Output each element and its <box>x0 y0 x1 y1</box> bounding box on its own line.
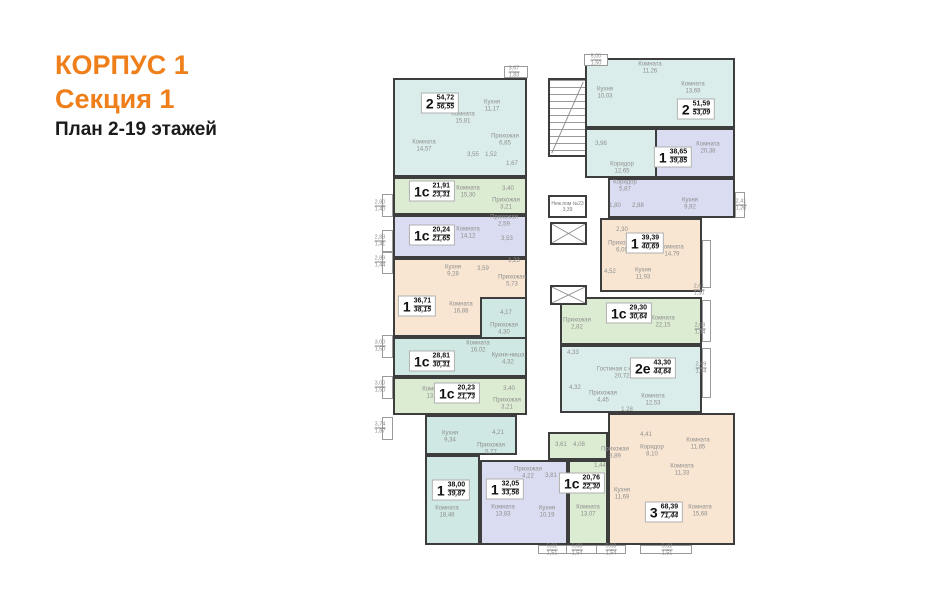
dimension-label: 3,741,87 <box>375 422 386 435</box>
tech-room: Неж.пом №23 3,39 <box>548 195 587 218</box>
room-label: Прихожая6,85 <box>491 134 519 147</box>
apt-area-main: 32,05 <box>502 481 520 490</box>
room-label: 3,81 <box>545 473 557 480</box>
apt-area-total: 30,64 <box>630 314 648 322</box>
apartment-label: 1с21,9123,31 <box>409 181 455 202</box>
apartment-label: 138,0039,87 <box>432 480 470 501</box>
apartment-label: 138,6539,85 <box>654 147 692 168</box>
dimension-label: 2,891,44 <box>375 256 386 269</box>
apt-area-main: 29,30 <box>630 305 648 314</box>
apt-area-main: 20,24 <box>433 227 451 236</box>
room-label: 1,28 <box>621 407 633 414</box>
room-label: 3,61 <box>555 442 567 449</box>
room-label: Прихожая4,30 <box>490 323 518 336</box>
apt-area-total: 40,69 <box>642 244 660 252</box>
room-label: 4,08 <box>573 442 585 449</box>
elevator-cross-icon <box>552 224 585 243</box>
apartment-label: 139,3940,69 <box>626 233 664 254</box>
apt-type: 2е <box>635 360 651 376</box>
apartment-label: 1с20,2321,73 <box>434 383 480 404</box>
room-label: Прихожая3,89 <box>601 447 629 460</box>
apt-type: 3 <box>650 504 658 520</box>
room-label: Коридор12,65 <box>610 162 634 175</box>
tech-room-area: 3,39 <box>563 207 573 213</box>
apt-type: 2 <box>682 101 690 117</box>
room-label: Комната11,26 <box>638 62 662 75</box>
dimension-label: 2,611,30 <box>694 284 705 297</box>
room-label: 1,23 <box>508 258 520 265</box>
room-label: 4,41 <box>640 432 652 439</box>
apartment-label: 368,3971,44 <box>645 502 683 523</box>
room-label: 3,55 <box>467 152 479 159</box>
apt-area-total: 56,55 <box>437 104 455 112</box>
apt-area-total: 33,56 <box>502 490 520 498</box>
dimension-label: 5,001,50 <box>591 54 602 67</box>
room-label: Прихожая4,45 <box>589 391 617 404</box>
room-label: Коридор8,10 <box>640 445 664 458</box>
dimension-label: 2,691,34 <box>695 323 706 336</box>
apt-area-total: 39,85 <box>670 158 688 166</box>
dimension-label: 5,081,54 <box>572 544 583 557</box>
apartment-label: 1с20,7622,30 <box>559 473 605 494</box>
apt-area-main: 38,00 <box>448 482 466 491</box>
apartment-3k-68[interactable] <box>608 413 735 545</box>
apt-area-main: 20,76 <box>583 475 601 484</box>
room-label: Коридор5,87 <box>613 180 637 193</box>
apt-type: 1с <box>611 305 627 321</box>
apt-type: 1 <box>403 298 411 314</box>
balcony <box>702 300 711 342</box>
dimension-label: 3,001,50 <box>375 340 386 353</box>
stairs-run-line <box>550 80 585 155</box>
apt-area-main: 28,81 <box>433 353 451 362</box>
dimension-label: 3,671,83 <box>509 66 520 79</box>
apt-area-total: 23,31 <box>433 192 451 200</box>
apt-area-total: 21,73 <box>458 394 476 402</box>
apartment-label: 1с29,3030,64 <box>606 303 652 324</box>
dimension-label: 2,831,41 <box>375 235 386 248</box>
room-label: 2,88 <box>632 203 644 210</box>
room-label: Комната11,85 <box>686 438 710 451</box>
room-label: 3,40 <box>502 186 514 193</box>
apt-type: 1 <box>437 482 445 498</box>
room-label: Кухня10,19 <box>539 506 555 519</box>
apt-area-total: 38,15 <box>414 307 432 315</box>
room-label: Комната20,38 <box>696 142 720 155</box>
apt-area-main: 21,91 <box>433 183 451 192</box>
apt-type: 1с <box>414 353 430 369</box>
apartment-label: 254,7256,55 <box>421 93 459 114</box>
room-label: Прихожая2,82 <box>563 318 591 331</box>
apt-type: 1с <box>414 227 430 243</box>
apt-area-total: 39,87 <box>448 491 466 499</box>
room-label: Прихожая5,73 <box>498 275 526 288</box>
room-label: 4,33 <box>567 350 579 357</box>
room-label: Кухня-ниша4,32 <box>492 353 525 366</box>
apt-type: 2 <box>426 95 434 111</box>
apt-area-total: 53,09 <box>693 110 711 118</box>
dimension-label: 5,081,54 <box>606 544 617 557</box>
room-label: Комната13,07 <box>576 505 600 518</box>
room-label: Кухня11,93 <box>635 268 651 281</box>
room-label: 3,53 <box>501 236 513 243</box>
apt-area-total: 21,65 <box>433 236 451 244</box>
apartment-label: 136,7138,15 <box>398 296 436 317</box>
room-label: 3,59 <box>477 266 489 273</box>
dimension-label: 5,021,51 <box>547 544 558 557</box>
dimension-label: 2,801,40 <box>375 200 386 213</box>
apt-area-main: 39,39 <box>642 235 660 244</box>
apt-type: 1 <box>659 149 667 165</box>
floor-plan: Неж.пом №23 3,39 254,7256,55 1с21,9123,3… <box>0 0 941 600</box>
apartment-label: 2е43,3044,64 <box>630 358 676 379</box>
room-label: Прихожая3,21 <box>493 398 521 411</box>
room-label: 1,52 <box>485 152 497 159</box>
staircase <box>548 78 587 157</box>
room-label: Прихожая5,77 <box>477 443 505 456</box>
room-label: Комната15,30 <box>456 186 480 199</box>
room-label: 3,40 <box>503 386 515 393</box>
apt-area-total: 44,64 <box>654 369 672 377</box>
elevator-shaft-1 <box>550 222 587 245</box>
room-label: 3,96 <box>595 141 607 148</box>
room-label: Комната22,15 <box>651 316 675 329</box>
room-label: 1,44 <box>594 463 606 470</box>
apt-area-main: 38,65 <box>670 149 688 158</box>
room-label: Кухня10,03 <box>597 87 613 100</box>
room-label: Кухня9,34 <box>442 431 458 444</box>
apt-area-total: 22,30 <box>583 484 601 492</box>
apartment-label: 132,0533,56 <box>486 479 524 500</box>
dimension-label: 2,691,34 <box>696 362 707 375</box>
apt-area-main: 68,39 <box>661 504 679 513</box>
apt-area-main: 20,23 <box>458 385 476 394</box>
apt-area-main: 36,71 <box>414 298 432 307</box>
apt-area-main: 54,72 <box>437 95 455 104</box>
room-label: Прихожая3,21 <box>492 198 520 211</box>
room-label: Комната16,88 <box>449 302 473 315</box>
elevator-shaft-2 <box>550 285 587 305</box>
room-label: Кухня9,92 <box>682 198 698 211</box>
apt-area-total: 30,31 <box>433 362 451 370</box>
room-label: Комната11,33 <box>670 464 694 477</box>
dimension-label: 5,021,51 <box>662 544 673 557</box>
elevator-cross-icon <box>552 287 585 303</box>
apt-area-main: 51,59 <box>693 101 711 110</box>
apartment-label: 1с20,2421,65 <box>409 225 455 246</box>
apartment-label: 1с28,8130,31 <box>409 351 455 372</box>
room-label: Комната16,02 <box>466 341 490 354</box>
dimension-label: 2,411,20 <box>736 199 747 212</box>
apt-type: 1с <box>414 183 430 199</box>
room-label: 4,52 <box>604 269 616 276</box>
room-label: Комната13,83 <box>491 505 515 518</box>
apt-type: 1 <box>491 481 499 497</box>
room-label: Комната18,48 <box>435 506 459 519</box>
room-label: Комната13,69 <box>681 82 705 95</box>
room-label: Комната14,57 <box>412 140 436 153</box>
room-label: Комната14,12 <box>456 227 480 240</box>
apt-type: 1с <box>439 385 455 401</box>
room-label: Кухня11,17 <box>484 100 500 113</box>
room-label: 1,80 <box>609 203 621 210</box>
apt-area-total: 71,44 <box>661 513 679 521</box>
room-label: 1,67 <box>506 161 518 168</box>
room-label: Комната15,68 <box>688 505 712 518</box>
room-label: 4,21 <box>492 430 504 437</box>
dimension-label: 3,001,50 <box>375 381 386 394</box>
apt-area-main: 43,30 <box>654 360 672 369</box>
room-label: Кухня9,28 <box>445 265 461 278</box>
room-label: 4,17 <box>500 310 512 317</box>
room-label: 4,32 <box>569 385 581 392</box>
apt-type: 1 <box>631 235 639 251</box>
room-label: Комната12,53 <box>641 394 665 407</box>
apartment-label: 251,5953,09 <box>677 99 715 120</box>
room-label: Прихожая2,59 <box>490 215 518 228</box>
apt-type: 1с <box>564 475 580 491</box>
balcony <box>702 240 711 288</box>
room-label: Кухня11,69 <box>614 488 630 501</box>
